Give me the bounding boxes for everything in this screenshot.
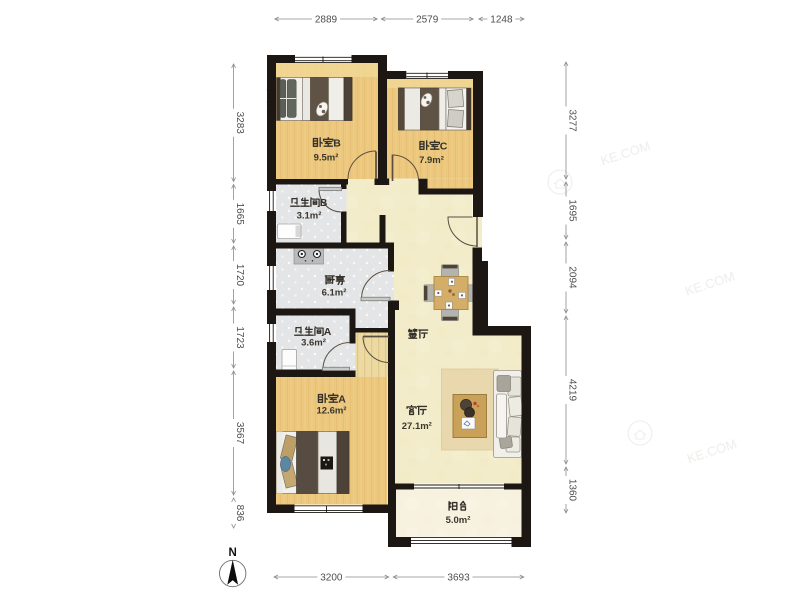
svg-text:3283: 3283 — [234, 112, 245, 135]
svg-text:27.1m²: 27.1m² — [402, 421, 432, 432]
svg-text:1723: 1723 — [234, 326, 245, 349]
svg-text:B: B — [333, 137, 341, 149]
svg-text:2094: 2094 — [567, 266, 578, 289]
svg-text:A: A — [338, 393, 346, 405]
svg-text:4219: 4219 — [567, 379, 578, 402]
svg-text:2579: 2579 — [416, 15, 439, 26]
svg-text:KE.COM: KE.COM — [685, 436, 738, 466]
svg-text:C: C — [440, 140, 448, 152]
svg-text:3277: 3277 — [567, 109, 578, 132]
svg-text:3.6m²: 3.6m² — [301, 338, 326, 349]
svg-text:1720: 1720 — [234, 264, 245, 287]
svg-text:9.5m²: 9.5m² — [314, 153, 339, 164]
svg-text:3200: 3200 — [320, 573, 343, 584]
svg-text:1248: 1248 — [490, 15, 513, 26]
svg-text:3693: 3693 — [447, 573, 470, 584]
svg-text:6.1m²: 6.1m² — [322, 288, 347, 299]
svg-text:B: B — [320, 197, 328, 209]
svg-text:KE.COM: KE.COM — [683, 268, 736, 298]
svg-text:KE.COM: KE.COM — [599, 138, 652, 168]
svg-text:5.0m²: 5.0m² — [446, 515, 471, 526]
svg-text:12.6m²: 12.6m² — [316, 406, 346, 417]
svg-text:1360: 1360 — [567, 479, 578, 502]
svg-text:7.9m²: 7.9m² — [419, 155, 444, 166]
svg-text:3567: 3567 — [234, 422, 245, 445]
svg-text:A: A — [324, 326, 332, 338]
svg-text:3.1m²: 3.1m² — [297, 211, 322, 222]
svg-text:836: 836 — [234, 505, 245, 522]
svg-text:1695: 1695 — [567, 199, 578, 222]
svg-text:1665: 1665 — [234, 203, 245, 226]
svg-text:2889: 2889 — [315, 15, 338, 26]
svg-text:N: N — [229, 547, 237, 559]
